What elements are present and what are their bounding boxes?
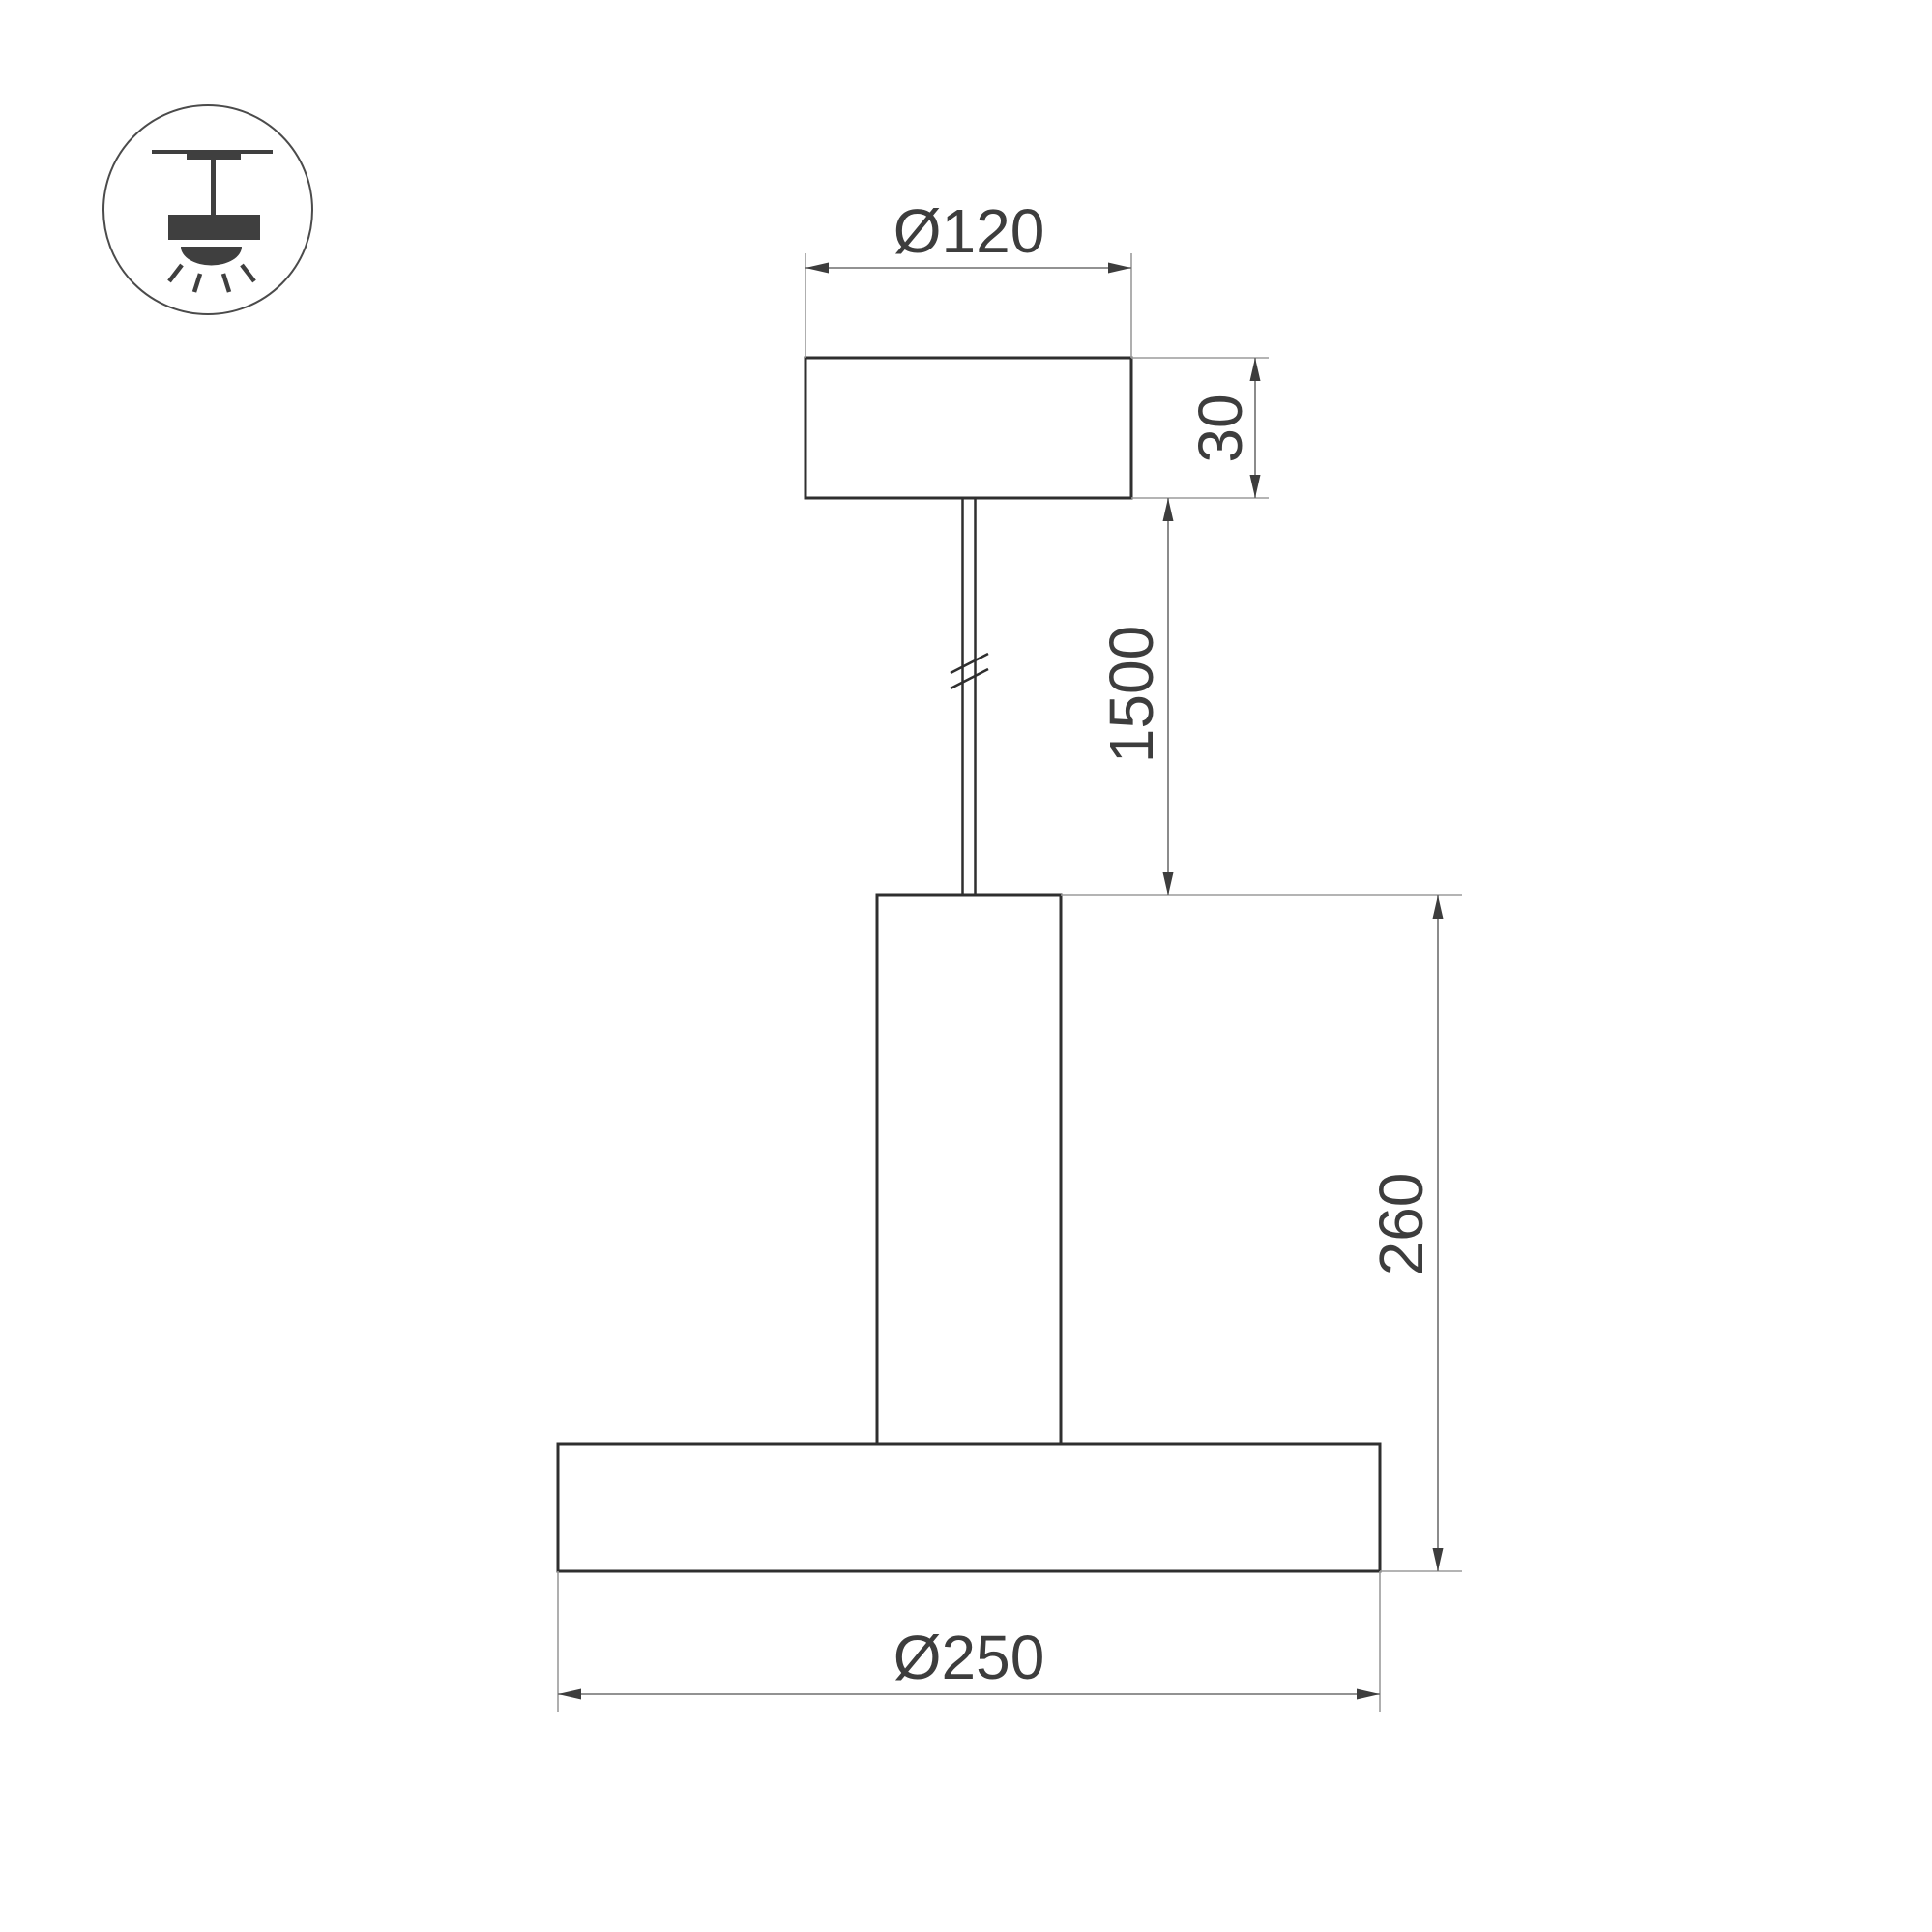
cable-break-symbol xyxy=(951,654,988,688)
arrowhead-bottom xyxy=(1433,1548,1444,1571)
icon-canopy-bar xyxy=(187,154,241,160)
arrowhead-bottom xyxy=(1163,872,1174,895)
icon-circle-border xyxy=(103,105,312,314)
lamp-outline xyxy=(558,358,1380,1571)
lamp-shade-outline xyxy=(558,1444,1380,1571)
dim-fixture-height-label: 260 xyxy=(1366,1173,1436,1276)
technical-drawing-canvas: Ø120 30 1500 260 Ø250 xyxy=(0,0,1932,1932)
arrowhead-top xyxy=(1250,358,1261,381)
icon-stem xyxy=(211,160,216,217)
arrowhead-left xyxy=(805,263,829,274)
arrowhead-right xyxy=(1357,1689,1380,1700)
arrowhead-right xyxy=(1108,263,1131,274)
arrowhead-top xyxy=(1163,498,1174,521)
icon-light-rays xyxy=(169,265,254,292)
arrowhead-left xyxy=(558,1689,581,1700)
icon-light-dome xyxy=(181,247,242,266)
suspension-cable xyxy=(963,498,976,895)
dim-shade-diameter: Ø250 xyxy=(558,1623,1380,1700)
canopy-outline xyxy=(805,358,1131,498)
dim-canopy-height: 30 xyxy=(1186,358,1261,498)
dim-canopy-height-label: 30 xyxy=(1186,394,1255,462)
dim-shade-diameter-label: Ø250 xyxy=(893,1623,1045,1692)
dim-suspension-length-label: 1500 xyxy=(1097,626,1166,763)
dim-suspension-length: 1500 xyxy=(1097,498,1174,895)
dim-canopy-diameter: Ø120 xyxy=(805,196,1131,274)
lamp-body-outline xyxy=(877,895,1061,1444)
drawing-page: Ø120 30 1500 260 Ø250 xyxy=(0,0,1932,1932)
icon-lamp-body xyxy=(168,215,260,240)
icon-ceiling-line xyxy=(152,150,273,154)
arrowhead-top xyxy=(1433,895,1444,919)
dim-canopy-diameter-label: Ø120 xyxy=(893,196,1045,266)
ceiling-pendant-icon xyxy=(103,105,312,314)
arrowhead-bottom xyxy=(1250,475,1261,498)
